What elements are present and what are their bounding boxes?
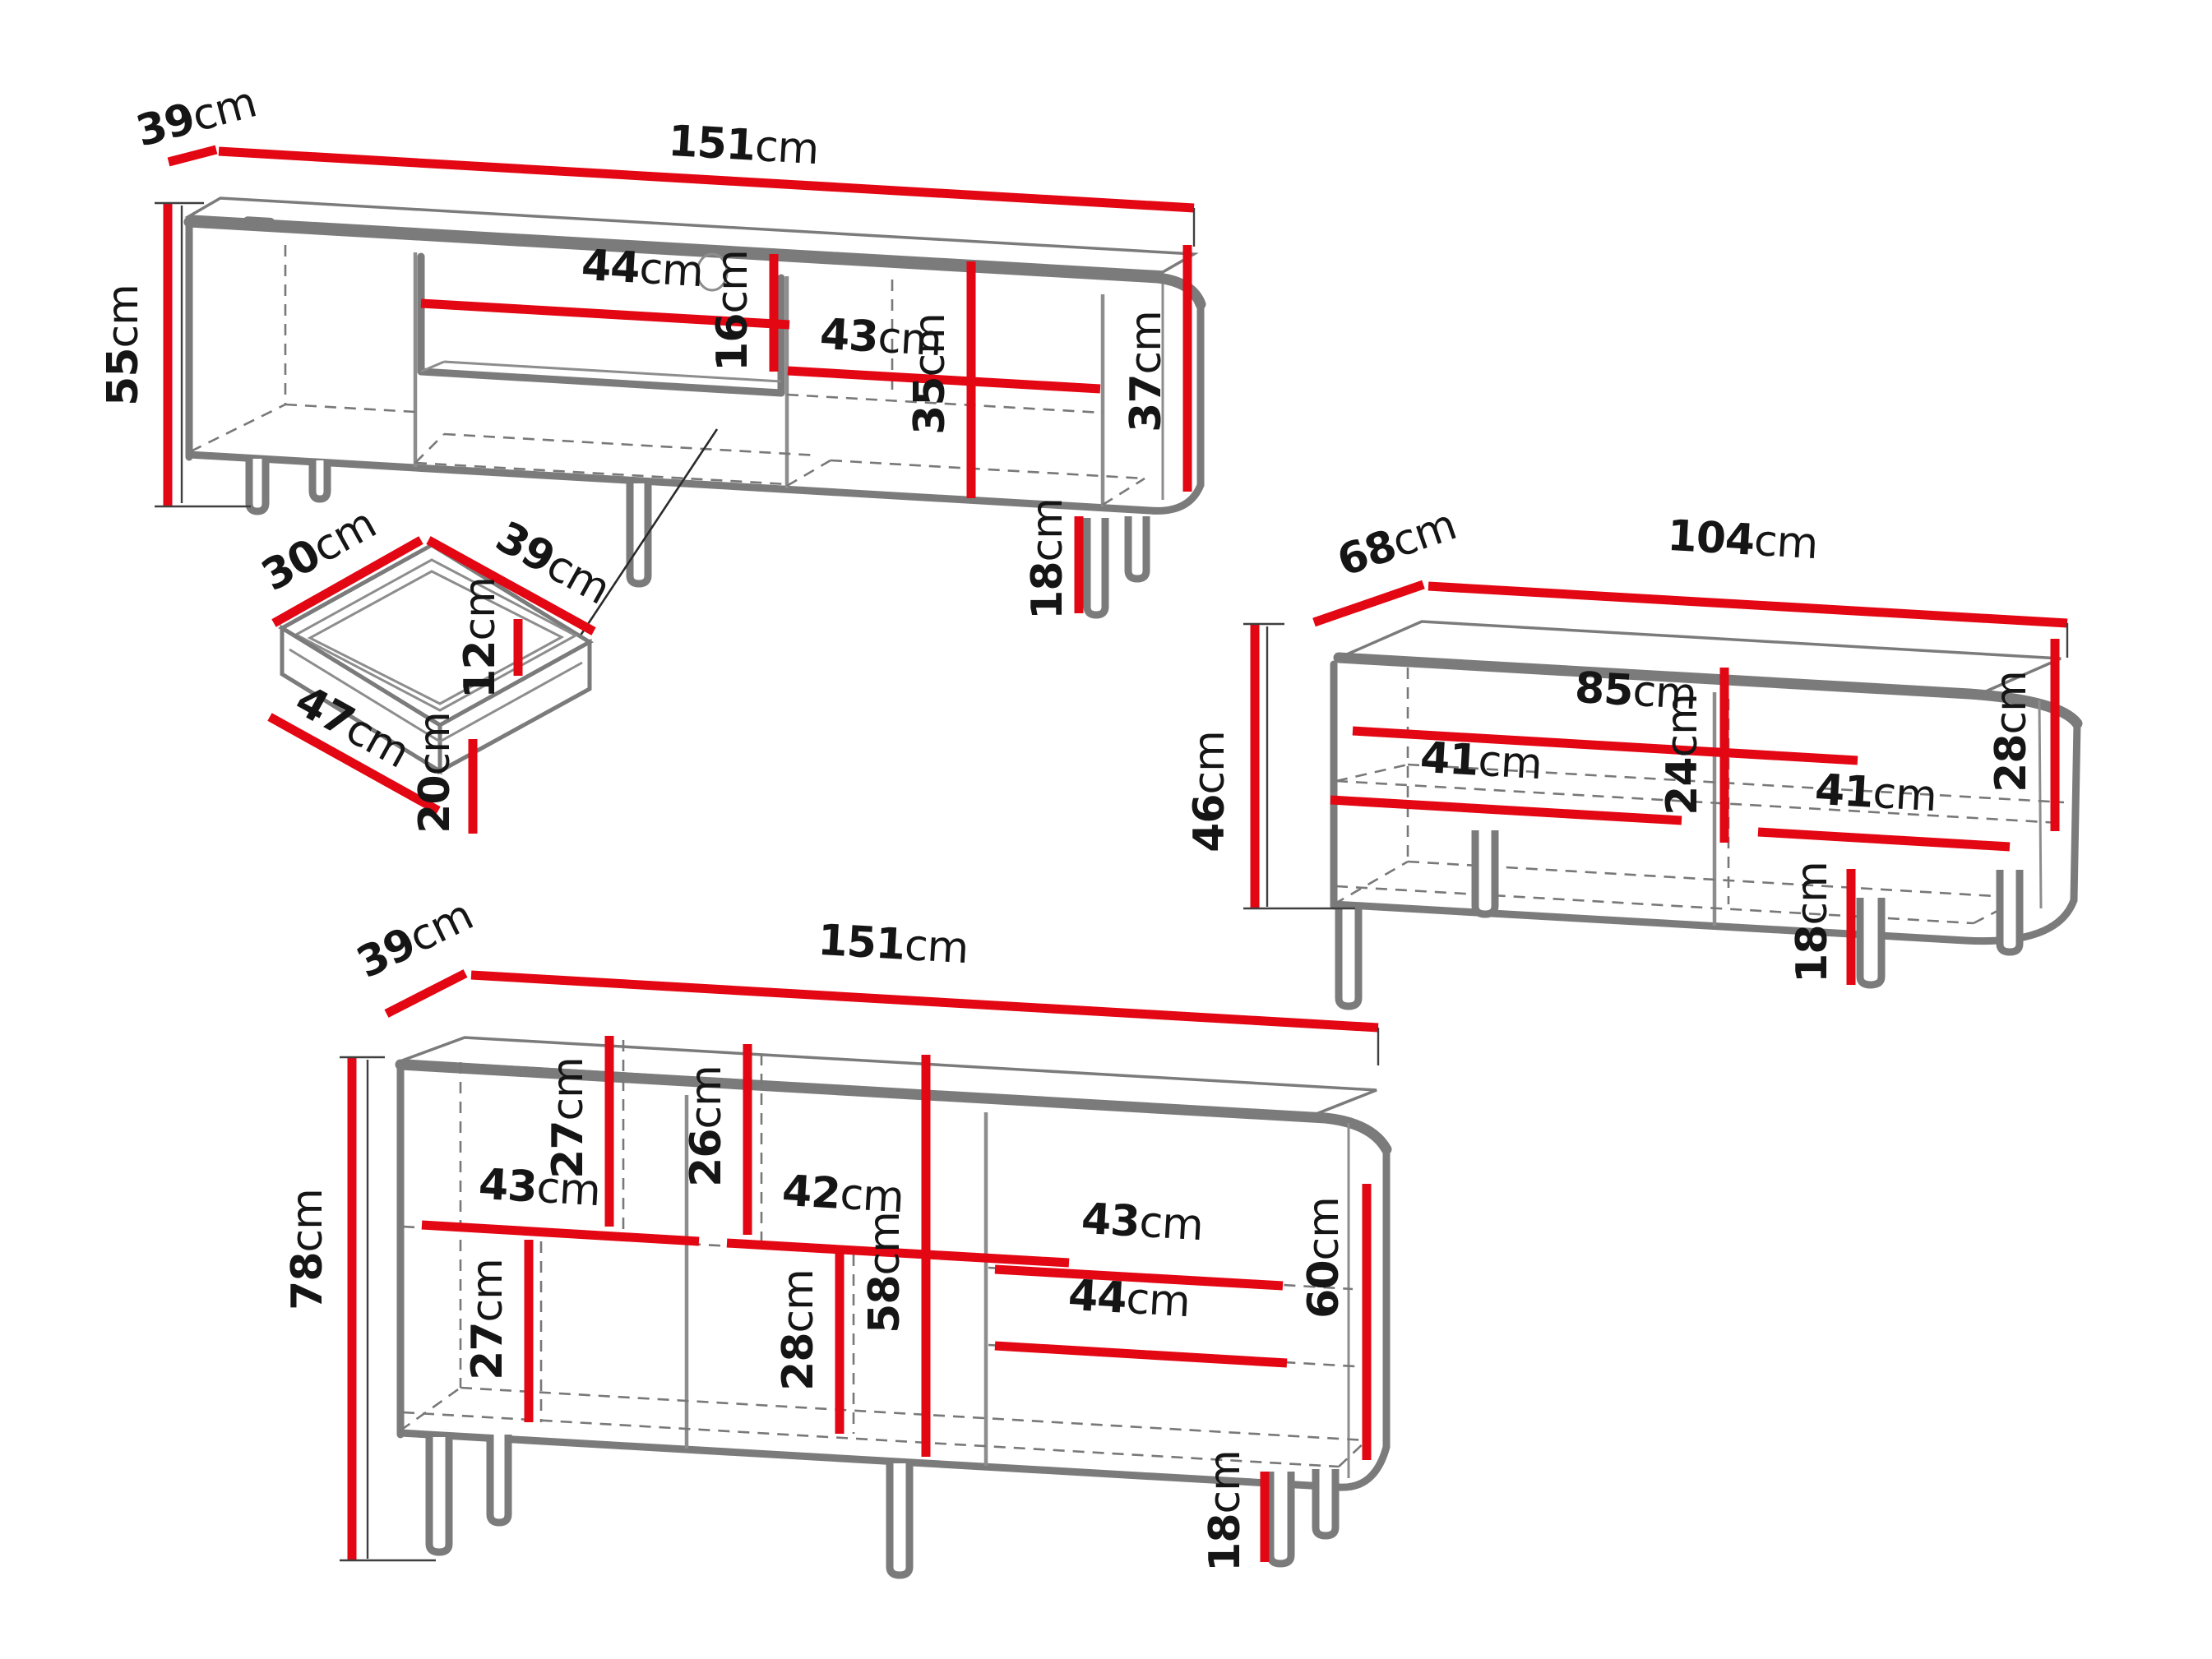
dim-label-sb-left-shelf-width: 43cm (478, 1160, 602, 1216)
drawer-detail: 30cm 39cm 12cm 47cm 20cm (254, 499, 618, 834)
dim-label-ct-right-shelf: 41cm (1814, 765, 1938, 821)
dim-label-sb-right-inner-height: 60cm (1299, 1197, 1349, 1319)
dim-line-sb-depth (386, 973, 465, 1014)
dim-label-drawer-inner-height: 12cm (456, 577, 505, 699)
tv-leg-front-right (1087, 518, 1105, 615)
sb-leg-back-left (490, 1435, 508, 1523)
ct-bottom-band (1334, 900, 2074, 941)
dim-label-ct-left-shelf: 41cm (1419, 733, 1543, 789)
sideboard: 39cm 151cm 78cm 27cm 26cm 43cm 42cm 43cm… (283, 890, 1386, 1575)
dim-label-tv-body-height: 37cm (1122, 311, 1171, 432)
tv-leg-front-left (249, 459, 266, 511)
sb-leg-back-right (1316, 1469, 1335, 1536)
sb-leg-middle (890, 1463, 909, 1575)
ct-height-extension (1243, 624, 1355, 908)
dim-label-sb-right-lower-width: 44cm (1067, 1271, 1192, 1327)
dim-label-ct-depth: 68cm (1331, 501, 1462, 587)
sb-legs (429, 1435, 1335, 1575)
tv-leg-middle (630, 483, 648, 584)
dim-label-ct-height: 46cm (1185, 731, 1234, 853)
dim-label-sb-left-lower-height: 27cm (463, 1259, 512, 1380)
dim-label-ct-leg-height: 18cm (1788, 862, 1837, 983)
sb-middle-door-handle-icon (814, 1084, 845, 1094)
dim-line-ct-width (1428, 586, 2067, 623)
dim-line-tv-depth (169, 150, 216, 162)
dim-label-ct-inner-height: 24cm (1658, 694, 1707, 816)
dim-line-ct-left-shelf (1330, 800, 1682, 820)
dim-label-tv-width: 151cm (667, 117, 820, 174)
dim-label-sb-height: 78cm (283, 1189, 332, 1310)
coffee-table-legs (1339, 830, 2020, 1006)
tv-leg-back-right (1128, 516, 1146, 579)
ct-right-inner-curve (2039, 700, 2041, 908)
sb-leg-front-left (429, 1437, 449, 1552)
tv-leg-back-left (312, 460, 327, 499)
sb-leg-front-right (1270, 1472, 1291, 1564)
dim-line-ct-right-shelf (1758, 832, 2010, 847)
dim-label-sb-middle-full-height: 58cm (860, 1212, 909, 1333)
ct-leg-back-left (1475, 830, 1495, 914)
dim-label-sb-left-upper-height: 27cm (544, 1057, 593, 1179)
diagram-page: 39cm 151cm 55cm 44cm 16cm 43cm 35cm 37cm… (0, 0, 2212, 1659)
coffee-table-dimensions: 68cm 104cm 46cm 85cm 24cm 41cm 41cm 28cm… (1185, 501, 2067, 985)
dim-label-ct-width: 104cm (1666, 511, 1819, 569)
dim-label-tv-right-height: 35cm (905, 313, 955, 435)
dim-line-sb-left-shelf-width (422, 1225, 699, 1241)
dim-label-sb-leg-height: 18cm (1201, 1450, 1250, 1572)
ct-leg-back-right (2000, 870, 2020, 952)
dim-label-tv-height: 55cm (99, 284, 148, 406)
dim-label-tv-niche-width: 44cm (581, 241, 705, 297)
dim-label-tv-depth: 39cm (132, 77, 261, 156)
dim-label-drawer-front-height: 20cm (410, 712, 460, 834)
dim-label-sb-middle-lower-height: 28cm (774, 1269, 823, 1391)
ct-right-edge (2074, 723, 2077, 900)
ct-leg-front-left (1339, 908, 1358, 1006)
dim-line-sb-right-lower-width (995, 1346, 1287, 1363)
dim-label-tv-leg-height: 18cm (1023, 498, 1072, 620)
furniture-dimension-diagram: 39cm 151cm 55cm 44cm 16cm 43cm 35cm 37cm… (0, 0, 2212, 1659)
dim-line-ct-depth (1314, 585, 1423, 622)
dim-label-tv-niche-height: 16cm (708, 250, 757, 372)
dim-label-sb-middle-upper-height: 26cm (682, 1065, 731, 1187)
dim-label-sb-right-upper-width: 43cm (1081, 1195, 1205, 1250)
ct-leg-front-right (1860, 898, 1881, 985)
dim-label-ct-side-height: 28cm (1987, 671, 2036, 793)
dim-line-sb-width (471, 975, 1378, 1028)
tv-niche-floor (421, 372, 781, 393)
sb-right-door-handle-icon (1131, 1102, 1161, 1112)
dim-label-sb-width: 151cm (817, 916, 969, 973)
coffee-table: 68cm 104cm 46cm 85cm 24cm 41cm 41cm 28cm… (1185, 501, 2077, 1006)
